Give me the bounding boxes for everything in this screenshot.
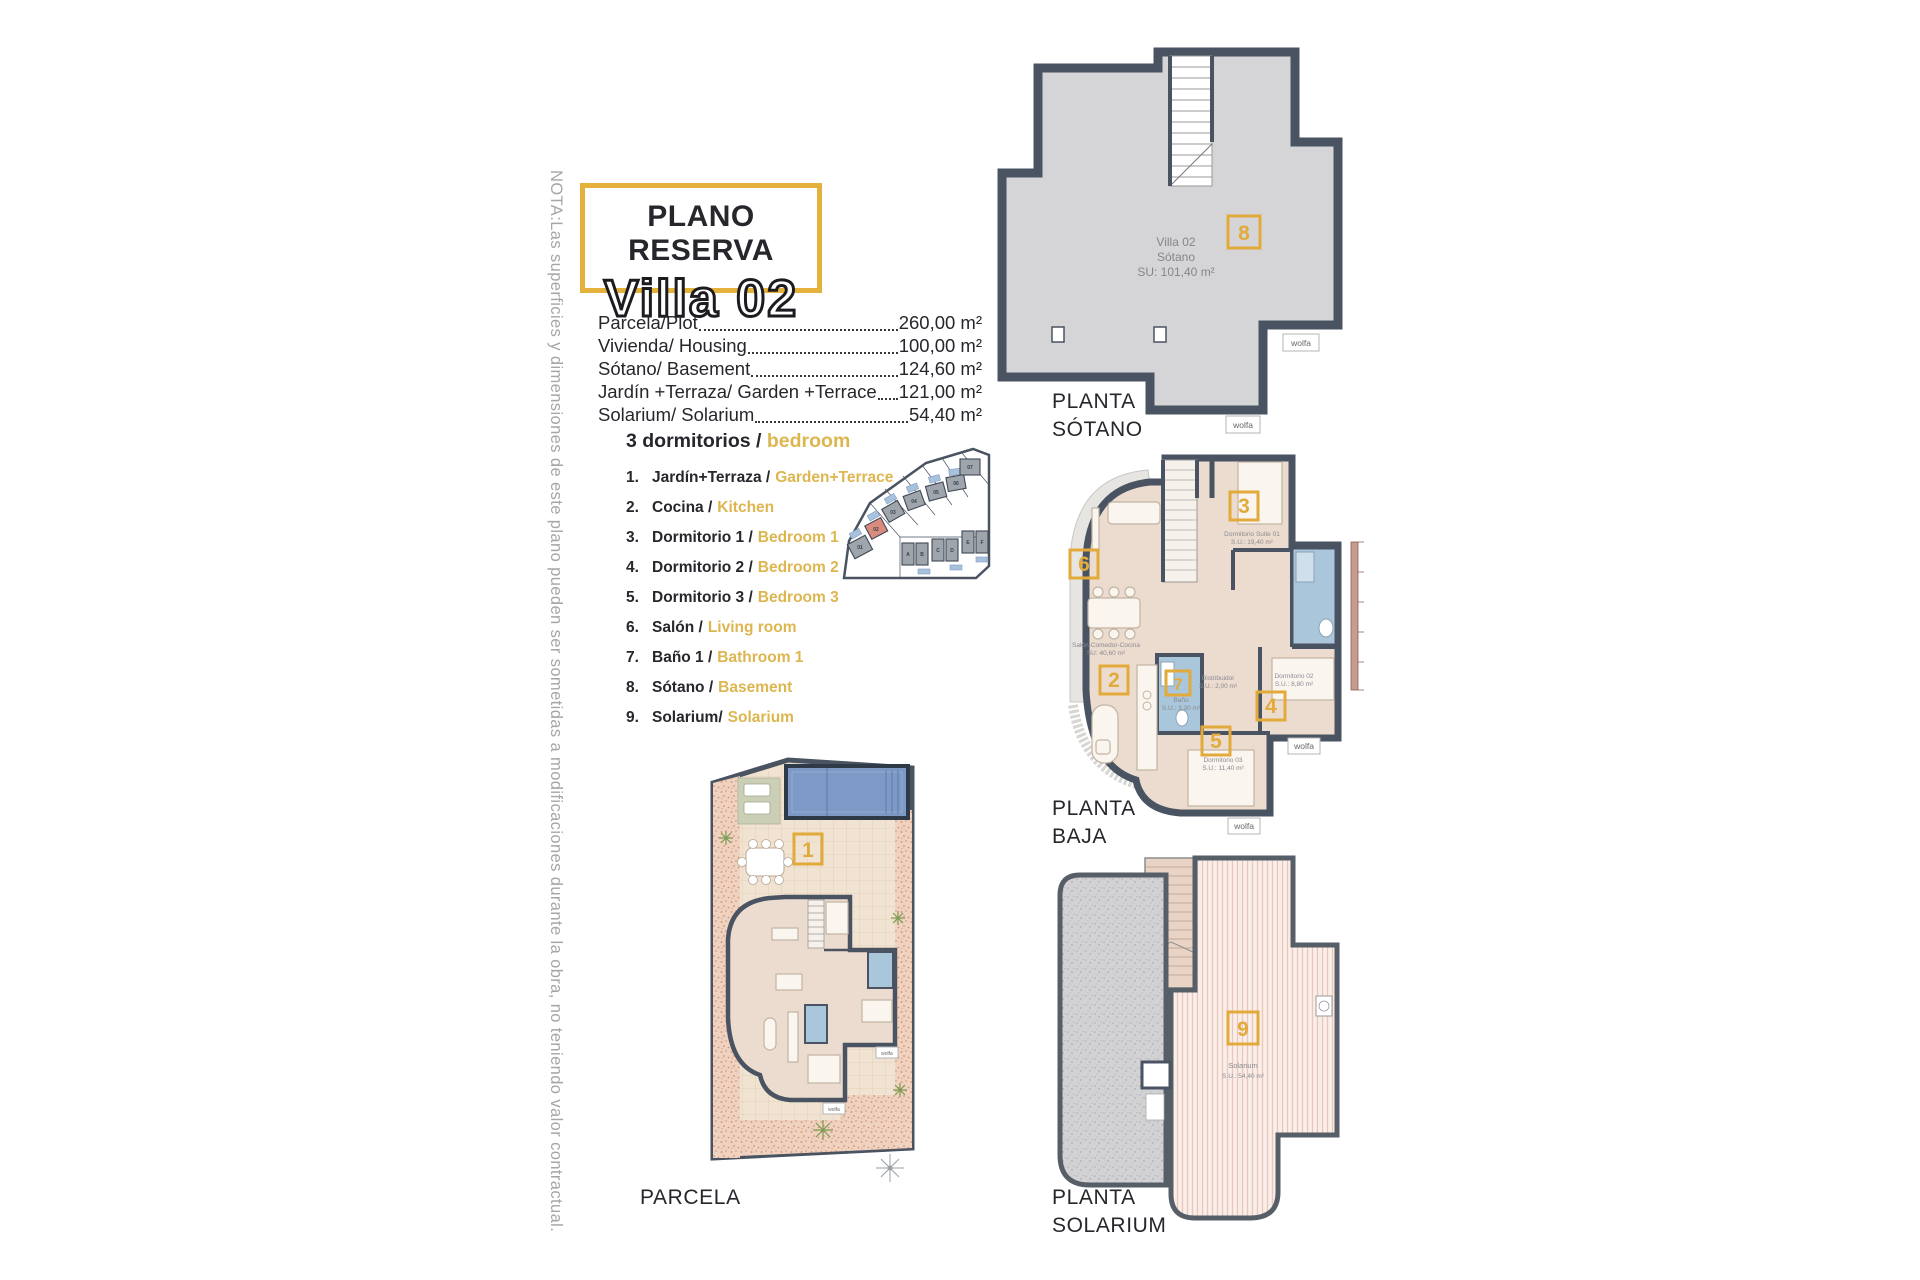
leader-dots [699, 329, 898, 331]
svg-text:S.U.: 11,40 m²: S.U.: 11,40 m² [1202, 765, 1244, 772]
room-badge-number: 8 [1238, 222, 1250, 245]
brand-logo-box: wolfa [1226, 416, 1260, 433]
plan-sheet: NOTA:Las superficies y dimensiones de es… [0, 0, 1920, 1280]
brand-logo: wolfa [881, 1051, 893, 1057]
ac-unit [1316, 996, 1332, 1016]
svg-text:A: A [906, 552, 910, 558]
basement-pillar [1052, 327, 1064, 342]
leader-dots [755, 421, 908, 423]
site-location-map: 01 02 03 04 05 06 07 A B C D E F [830, 445, 1000, 585]
svg-text:S.U.: 2,00 m²: S.U.: 2,00 m² [1199, 683, 1238, 690]
room-badge-number: 1 [802, 839, 814, 862]
legend-item: 9.Solarium/Solarium [626, 709, 926, 739]
area-row: Solarium/ Solarium54,40 m² [598, 403, 982, 426]
basement-pillar [1154, 327, 1166, 342]
leader-dots [748, 352, 898, 354]
basement-info-villa: Villa 02 [1156, 235, 1195, 249]
svg-text:3: 3 [1238, 495, 1250, 518]
svg-text:Dormitorio 02: Dormitorio 02 [1274, 673, 1313, 680]
svg-text:F: F [980, 540, 983, 546]
leader-dots [878, 398, 898, 400]
lounger-patio [738, 778, 780, 824]
area-label: Vivienda/ Housing [598, 335, 747, 357]
area-value: 54,40 m² [909, 404, 982, 426]
svg-text:Baño: Baño [1173, 697, 1189, 704]
area-label: Jardín +Terraza/ Garden +Terrace [598, 381, 877, 403]
sun-lounger [744, 784, 770, 796]
area-value: 121,00 m² [899, 381, 982, 403]
svg-text:04: 04 [911, 499, 917, 505]
svg-text:01: 01 [857, 545, 863, 551]
ground-floor-plan: 6 3 2 7 4 5 Dormitorio Suite 01 S.U.: 19… [1030, 450, 1420, 850]
sun-lounger [744, 802, 770, 814]
roof-access [1142, 1062, 1170, 1088]
solarium-deck [1171, 858, 1337, 1218]
leader-dots [751, 375, 897, 377]
svg-text:S.U.: 8,80 m²: S.U.: 8,80 m² [1275, 681, 1314, 688]
area-label: Solarium/ Solarium [598, 404, 754, 426]
svg-text:03: 03 [890, 510, 896, 516]
legend-item: 5.Dormitorio 3 /Bedroom 3 [626, 589, 926, 619]
basement-caption: PLANTA SÓTANO [1052, 388, 1143, 444]
toilet [1176, 710, 1188, 726]
brand-logo: wolfa [828, 1107, 840, 1113]
basement-staircase [1170, 56, 1212, 186]
svg-text:SU: 40,60 m²: SU: 40,60 m² [1087, 650, 1126, 657]
area-value: 260,00 m² [899, 312, 982, 334]
svg-text:S.U.: 3,30 m²: S.U.: 3,30 m² [1162, 705, 1201, 712]
basement-info-name: Sótano [1157, 250, 1195, 264]
svg-text:Dormitorio 03: Dormitorio 03 [1203, 757, 1242, 764]
swimming-pool [786, 766, 908, 818]
section-ruler [1351, 542, 1364, 690]
brand-logo: wolfa [1232, 420, 1253, 430]
ground-staircase [1163, 460, 1197, 582]
svg-text:07: 07 [967, 465, 973, 471]
svg-text:02: 02 [873, 527, 879, 533]
brand-logo-box: wolfa [1283, 334, 1319, 351]
area-value: 124,60 m² [899, 358, 982, 380]
area-summary-list: Parcela/Plot260,00 m² Vivienda/ Housing1… [598, 311, 982, 426]
svg-text:Salón-Comedor-Cocina: Salón-Comedor-Cocina [1072, 642, 1140, 649]
legend-heading-es: 3 dormitorios / [626, 430, 761, 452]
brand-logo-box [1146, 1094, 1164, 1120]
basement-info-area: SU: 101,40 m² [1137, 265, 1214, 279]
svg-text:5: 5 [1210, 730, 1222, 753]
disclaimer-note: NOTA:Las superficies y dimensiones de es… [546, 170, 565, 1070]
svg-text:06: 06 [953, 481, 959, 487]
plan-title: PLANO RESERVA [585, 200, 817, 268]
shower [1296, 552, 1314, 582]
compass-star [876, 1154, 904, 1182]
title-box: PLANO RESERVA Villa 02 [580, 183, 822, 293]
area-row: Jardín +Terraza/ Garden +Terrace121,00 m… [598, 380, 982, 403]
brand-logo: wolfa [1233, 821, 1254, 831]
svg-text:05: 05 [933, 490, 939, 496]
brand-logo-box: wolfa [1288, 738, 1320, 754]
ground-floor-caption: PLANTA BAJA [1052, 795, 1136, 851]
solarium-info-name: Solarium [1228, 1061, 1258, 1070]
brand-logo-box: wolfa [1228, 818, 1260, 834]
solarium-caption: PLANTA SOLARIUM [1052, 1184, 1167, 1240]
svg-text:C: C [936, 548, 940, 554]
toilet [1319, 619, 1333, 637]
svg-text:4: 4 [1265, 695, 1277, 718]
svg-text:7: 7 [1173, 675, 1182, 694]
plot-caption: PARCELA [640, 1184, 741, 1212]
brand-logo: wolfa [1293, 741, 1314, 751]
area-row: Sótano/ Basement124,60 m² [598, 357, 982, 380]
svg-text:D: D [950, 548, 954, 554]
brand-logo: wolfa [1290, 338, 1311, 348]
svg-text:2: 2 [1108, 669, 1120, 692]
legend-item: 6.Salón /Living room [626, 619, 926, 649]
svg-text:B: B [920, 552, 924, 558]
legend-item: 7.Baño 1 /Bathroom 1 [626, 649, 926, 679]
area-label: Parcela/Plot [598, 312, 698, 334]
svg-text:S.U.: 19,40 m²: S.U.: 19,40 m² [1231, 539, 1274, 546]
svg-text:Distribuidor: Distribuidor [1202, 675, 1236, 682]
room-badge-number: 9 [1237, 1018, 1249, 1041]
roof-area [1060, 875, 1166, 1185]
area-label: Sótano/ Basement [598, 358, 750, 380]
area-row: Parcela/Plot260,00 m² [598, 311, 982, 334]
area-value: 100,00 m² [899, 335, 982, 357]
legend-item: 8.Sótano /Basement [626, 679, 926, 709]
basement-floor-plan: 8 Villa 02 Sótano SU: 101,40 m² wolfa wo… [980, 30, 1380, 460]
svg-text:Dormitorio Suite 01: Dormitorio Suite 01 [1224, 531, 1280, 538]
plot-plan: 1 wolfa wolfa [690, 750, 940, 1200]
svg-text:6: 6 [1078, 553, 1090, 576]
area-row: Vivienda/ Housing100,00 m² [598, 334, 982, 357]
solarium-info-area: S.U.: 54,40 m² [1222, 1073, 1265, 1080]
